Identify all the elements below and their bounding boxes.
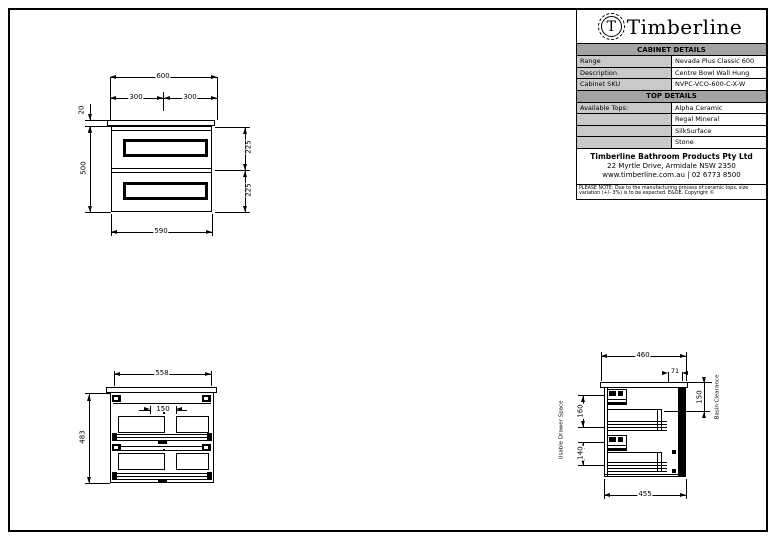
drawer-box-panel — [176, 416, 209, 433]
line-horizontal — [607, 471, 667, 472]
fill-block — [609, 437, 616, 442]
dim-basin-clearance: 150 — [697, 389, 704, 404]
dimension-arrowhead — [111, 230, 117, 234]
row-label: Cabinet SKU — [577, 79, 672, 90]
line-vertical — [89, 394, 90, 483]
drawer-box-panel — [176, 453, 209, 470]
fill-block — [163, 412, 165, 414]
dimension-arrowhead — [682, 371, 688, 375]
line-horizontal — [85, 483, 110, 484]
fill-block — [618, 437, 623, 442]
line-horizontal — [113, 403, 211, 404]
mounting-screw — [672, 469, 676, 473]
dim-depth-overall: 460 — [635, 352, 650, 359]
dimension-arrowhead — [702, 412, 706, 418]
row-label: Description — [577, 68, 672, 79]
line-horizontal — [113, 434, 212, 435]
line-horizontal — [578, 465, 604, 466]
line-horizontal — [607, 462, 667, 463]
line-horizontal — [605, 474, 678, 475]
line-horizontal — [607, 465, 667, 466]
slide-end-block — [112, 472, 117, 480]
line-vertical — [217, 77, 218, 120]
line-horizontal — [607, 409, 661, 410]
disclaimer-note: PLEASE NOTE: Due to the manufacturing pr… — [577, 184, 766, 200]
drawing-sheet: T Timberline CABINET DETAILS Range Nevad… — [0, 0, 777, 542]
dim-left-half: 300 — [128, 94, 143, 101]
row-value: Regal Mineral — [672, 114, 766, 125]
line-vertical — [686, 352, 687, 381]
line-vertical — [211, 371, 212, 386]
cutout-block — [204, 446, 208, 449]
dimension-arrowhead — [243, 164, 247, 170]
line-horizontal — [113, 476, 212, 477]
table-row-range: Range Nevada Plus Classic 600 — [577, 55, 766, 67]
row-value: Alpha Ceramic — [672, 103, 766, 114]
cutout-block — [114, 446, 118, 449]
dimension-arrowhead — [87, 477, 91, 483]
line-horizontal — [112, 168, 211, 169]
line-vertical — [90, 126, 91, 212]
usable-drawer-space-label: Usable Drawer Space — [559, 401, 565, 460]
company-contact: www.timberline.com.au | 02 6773 8500 — [579, 171, 764, 180]
cutout-block — [204, 397, 208, 400]
fill-block — [608, 448, 626, 450]
drawer-handle-recess-bottom — [123, 182, 208, 200]
dimension-arrowhead — [702, 377, 706, 383]
dimension-arrowhead — [601, 354, 607, 358]
top-details-header: TOP DETAILS — [577, 90, 766, 102]
line-horizontal — [607, 430, 667, 431]
dim-cabinet-height: 500 — [81, 160, 88, 175]
back-panel — [678, 388, 685, 476]
dimension-arrowhead — [680, 354, 686, 358]
table-row-top-4: Stone — [577, 136, 766, 148]
dimension-arrowhead — [114, 372, 120, 376]
line-vertical — [150, 406, 151, 414]
center-clip — [158, 440, 167, 444]
line-horizontal — [608, 445, 626, 446]
drawer-handle-recess-top — [123, 139, 208, 157]
logo-letter: T — [607, 19, 616, 35]
dimension-arrowhead — [243, 171, 247, 177]
row-value: Centre Bowl Wall Hung — [672, 68, 766, 79]
dimension-arrowhead — [211, 75, 217, 79]
row-label: Available Tops: — [577, 103, 672, 114]
row-value: Nevada Plus Classic 600 — [672, 56, 766, 67]
line-horizontal — [113, 473, 212, 474]
line-vertical — [704, 377, 705, 417]
dimension-arrowhead — [176, 407, 182, 411]
table-row-description: Description Centre Bowl Wall Hung — [577, 67, 766, 79]
dimension-arrowhead — [581, 421, 585, 427]
brand-logo: T Timberline — [577, 10, 766, 43]
table-row-top-1: Available Tops: Alpha Ceramic — [577, 102, 766, 114]
line-horizontal — [113, 450, 211, 451]
dimension-arrowhead — [110, 75, 116, 79]
dimension-arrowhead — [157, 96, 163, 100]
row-label-empty — [577, 126, 672, 137]
fill-block — [608, 402, 626, 404]
dimension-arrowhead — [581, 396, 585, 402]
line-horizontal — [112, 172, 211, 173]
line-vertical — [686, 479, 687, 499]
dim-right-half: 300 — [182, 94, 197, 101]
line-horizontal — [607, 427, 667, 428]
dimension-arrowhead — [604, 493, 610, 497]
title-block: T Timberline CABINET DETAILS Range Nevad… — [576, 9, 767, 200]
dimension-arrowhead — [164, 96, 170, 100]
line-horizontal — [113, 437, 212, 438]
drawer-box-panel — [118, 416, 165, 433]
line-horizontal — [607, 424, 667, 425]
dimension-arrowhead — [211, 96, 217, 100]
line-horizontal — [215, 212, 250, 213]
row-label: Range — [577, 56, 672, 67]
cabinet-details-header: CABINET DETAILS — [577, 43, 766, 55]
drawer-box-panel — [118, 453, 165, 470]
row-value: NVPC-VCO-600-C-X-W — [672, 79, 766, 90]
dimension-arrowhead — [662, 371, 668, 375]
brand-name: Timberline — [627, 15, 742, 39]
line-vertical — [212, 214, 213, 236]
dim-overall-width: 600 — [155, 73, 170, 80]
line-horizontal — [607, 452, 661, 453]
dimension-arrowhead — [205, 372, 211, 376]
slide-end-block — [207, 472, 212, 480]
line-horizontal — [607, 468, 667, 469]
dimension-arrowhead — [110, 96, 116, 100]
fill-block — [609, 391, 616, 396]
row-value: Stone — [672, 137, 766, 148]
table-row-sku: Cabinet SKU NVPC-VCO-600-C-X-W — [577, 78, 766, 90]
dim-benchtop-thickness: 20 — [79, 105, 86, 116]
mounting-screw — [672, 450, 676, 454]
dim-rear-offset: 71 — [670, 368, 680, 375]
line-horizontal — [608, 399, 626, 400]
basin-clearance-label: Basin Clearance — [715, 375, 721, 419]
company-info: Timberline Bathroom Products Pty Ltd 22 … — [577, 148, 766, 184]
dim-internal-height: 483 — [80, 429, 87, 444]
dimension-arrowhead — [243, 206, 247, 212]
line-horizontal — [113, 446, 211, 447]
fill-block — [163, 449, 165, 451]
fill-block — [618, 391, 623, 396]
table-row-top-3: SilkSurface — [577, 125, 766, 137]
dim-bottom-drawer-depth: 140 — [578, 445, 585, 460]
cutout-block — [114, 397, 118, 400]
dimension-arrowhead — [87, 395, 91, 401]
row-value: SilkSurface — [672, 126, 766, 137]
row-label-empty — [577, 114, 672, 125]
line-horizontal — [85, 120, 107, 121]
line-horizontal — [112, 130, 211, 131]
dim-internal-width: 558 — [154, 370, 169, 377]
timberline-seal-icon: T — [601, 16, 622, 37]
dim-drawer-front-top: 225 — [246, 139, 253, 154]
slide-end-block — [112, 433, 117, 441]
line-horizontal — [607, 421, 667, 422]
dim-carcass-depth: 455 — [637, 491, 652, 498]
line-horizontal — [578, 427, 604, 428]
dimension-arrowhead — [144, 407, 150, 411]
dim-carcass-width: 590 — [153, 228, 168, 235]
line-horizontal — [85, 212, 111, 213]
dim-drawer-front-bottom: 225 — [246, 182, 253, 197]
table-row-top-2: Regal Mineral — [577, 113, 766, 125]
dimension-arrowhead — [88, 127, 92, 133]
dimension-arrowhead — [206, 230, 212, 234]
slide-end-block — [207, 433, 212, 441]
company-address: 22 Myrtle Drive, Armidale NSW 2350 — [579, 162, 764, 171]
line-vertical — [163, 92, 164, 111]
dimension-arrowhead — [680, 493, 686, 497]
dimension-arrowhead — [243, 128, 247, 134]
dim-top-drawer-depth: 160 — [578, 403, 585, 418]
row-label-empty — [577, 137, 672, 148]
center-clip — [158, 479, 167, 483]
company-name: Timberline Bathroom Products Pty Ltd — [579, 152, 764, 162]
line-horizontal — [688, 382, 712, 383]
